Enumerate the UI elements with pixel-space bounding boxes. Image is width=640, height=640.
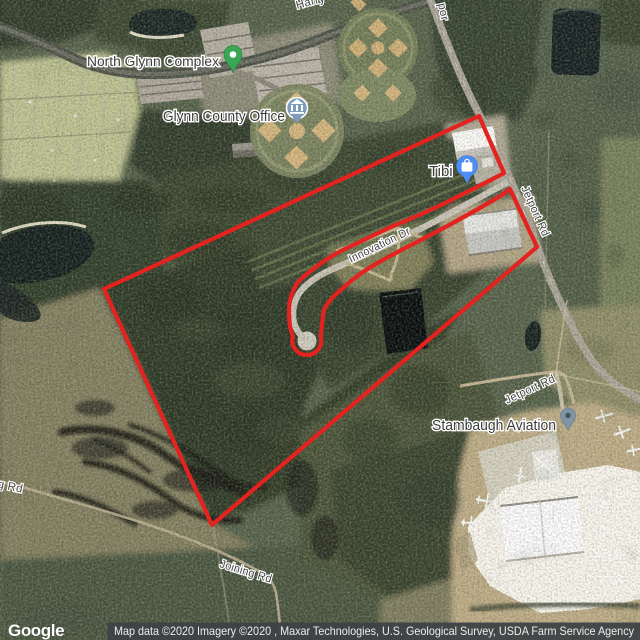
svg-text:Tibi: Tibi (429, 163, 453, 180)
svg-text:Google: Google (8, 621, 64, 640)
svg-text:North Glynn Complex: North Glynn Complex (87, 54, 219, 69)
svg-text:Stambaugh Aviation: Stambaugh Aviation (432, 417, 556, 434)
svg-text:Glynn County Office: Glynn County Office (163, 109, 285, 125)
svg-text:Map data ©2020 Imagery ©2020: Map data ©2020 Imagery ©2020 , Maxar Tec… (114, 625, 634, 638)
